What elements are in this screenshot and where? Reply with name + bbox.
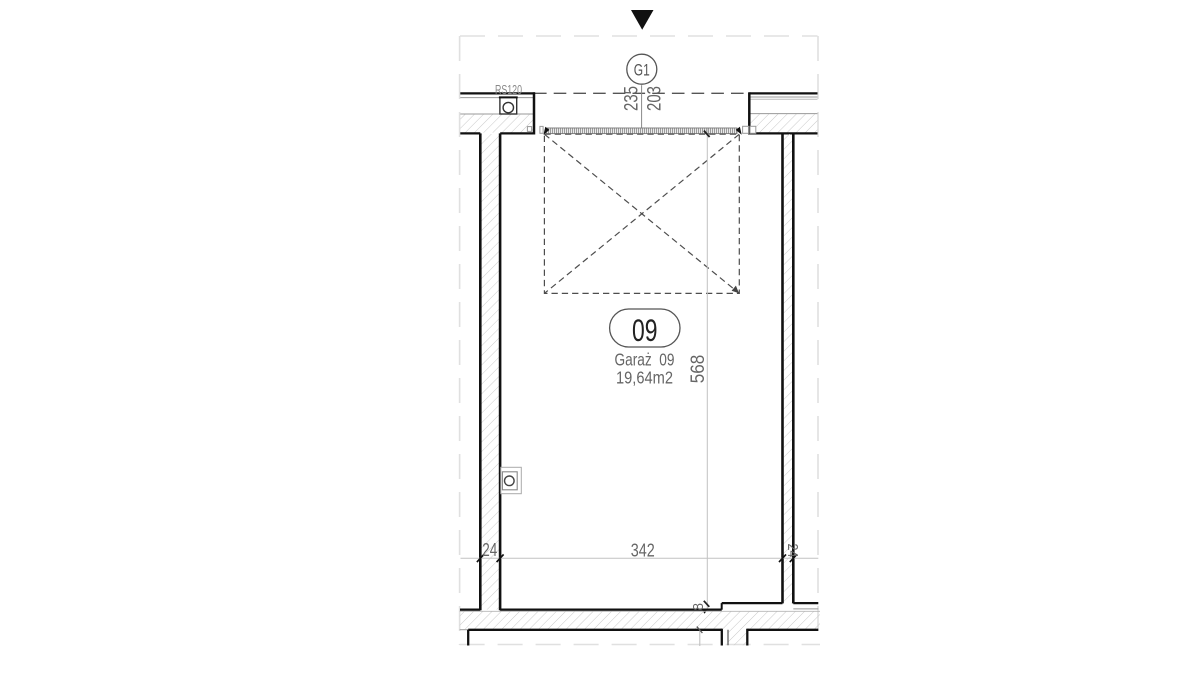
- svg-text:G1: G1: [634, 61, 650, 80]
- svg-text:19,64m2: 19,64m2: [616, 368, 673, 388]
- svg-text:342: 342: [631, 541, 655, 561]
- svg-text:Garaż 09: Garaż 09: [615, 350, 675, 370]
- svg-text:24: 24: [784, 544, 801, 558]
- svg-text:8: 8: [690, 603, 707, 611]
- svg-text:09: 09: [632, 312, 658, 348]
- svg-text:24: 24: [482, 540, 497, 560]
- svg-text:235: 235: [621, 86, 643, 111]
- svg-text:568: 568: [687, 355, 709, 384]
- svg-text:RS120: RS120: [495, 83, 522, 97]
- svg-text:203: 203: [644, 86, 666, 111]
